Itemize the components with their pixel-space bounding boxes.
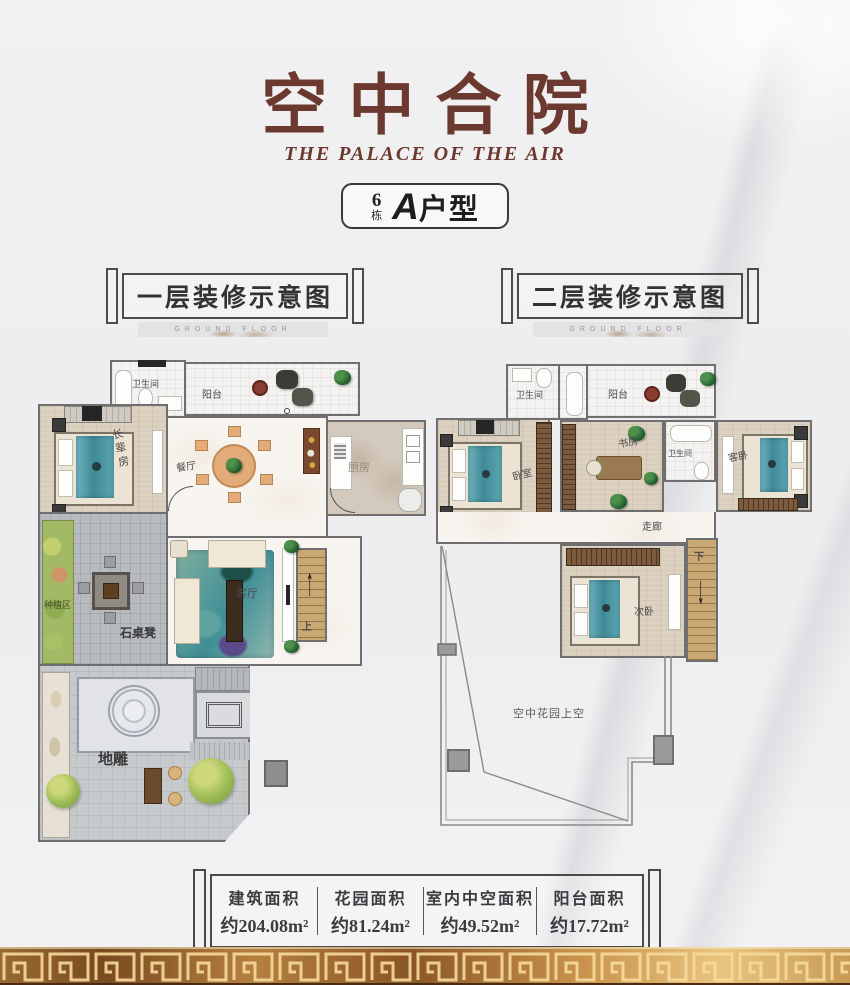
wardrobe-icon [536, 422, 552, 514]
toilet-icon [694, 462, 709, 480]
tv-icon [286, 585, 290, 605]
f1-living-room [166, 536, 362, 666]
unit-type-badge: 6 栋 A 户型 [340, 182, 510, 230]
f2-bathroom-label: 卫生间 [516, 388, 543, 401]
floor2-plan: ↓ 空中花园上空 卫生间 阳台 卧室 书房 卫生间 客卧 走廊 次卧 下 [436, 358, 816, 828]
planting-strip [42, 520, 74, 664]
plant-shelf-icon [303, 428, 320, 474]
f1-elder-bedroom [38, 404, 168, 514]
tv-wall-panel [282, 548, 294, 642]
floor2-label-text: 二层装修示意图 [532, 278, 728, 314]
pillow [791, 441, 804, 463]
sink-icon [406, 451, 420, 463]
plant-icon [644, 472, 658, 485]
area-stats: 建筑面积 约204.08m² 花园面积 约81.24m² 室内中空面积 约49.… [210, 874, 644, 948]
chair-icon [228, 492, 241, 503]
bean-seat-icon [666, 374, 686, 392]
entry-mat [206, 702, 242, 728]
floor2-banner-text: GROUND FLOOR [569, 326, 686, 333]
pillow [452, 449, 466, 473]
bed [448, 442, 522, 510]
counter-icon [402, 428, 424, 486]
stool-icon [168, 792, 182, 806]
rock-garden-strip [42, 672, 70, 838]
void-outline [436, 544, 686, 828]
f1-planting-label: 种植区 [44, 598, 71, 611]
stairs-down-arrow-icon: ↓ [697, 572, 705, 611]
f2-second-bedroom-label: 次卧 [634, 603, 654, 618]
building-number-unit: 栋 [371, 211, 382, 222]
f2-corridor-label: 走廊 [642, 518, 662, 533]
pillow [452, 477, 466, 501]
porch-steps [195, 667, 253, 691]
pillow [791, 468, 804, 490]
stat-building-area: 建筑面积 约204.08m² [212, 885, 317, 938]
stat-garden-area: 花园面积 约81.24m² [318, 885, 423, 938]
pillow [58, 470, 73, 497]
stat-value: 约204.08m² [221, 912, 309, 938]
unit-type: A 户型 [392, 188, 479, 225]
stat-label: 阳台面积 [554, 885, 626, 909]
f1-courtyard [38, 512, 168, 666]
tea-table-icon [144, 768, 162, 804]
stool-icon [104, 612, 116, 624]
floor1-banner-text: GROUND FLOOR [174, 326, 291, 333]
sofa-icon [208, 540, 266, 568]
f1-bathroom-label: 卫生间 [132, 377, 159, 390]
chair-icon [228, 426, 241, 437]
balcony-table-icon [252, 380, 268, 396]
stat-void-area: 室内中空面积 约49.52m² [424, 885, 536, 938]
plant-icon [700, 372, 716, 386]
ground-carving-circle-icon [108, 685, 160, 737]
chair-icon [196, 474, 209, 485]
f2-corridor [436, 512, 716, 544]
f1-living-label: 客厅 [236, 585, 258, 601]
plant-icon [284, 540, 299, 553]
floor1-plan: ↑ [36, 358, 428, 842]
tree-icon [46, 774, 80, 808]
side-table-icon [170, 540, 188, 558]
bean-seat-icon [292, 388, 313, 406]
nightstand-icon [440, 434, 453, 447]
entry-court [195, 691, 253, 739]
desk-chair-icon [586, 460, 602, 476]
f2-stairs-down-label: 下 [694, 548, 704, 563]
bed-ornament [482, 470, 490, 478]
vanity-icon [138, 360, 166, 367]
unit-type-text: 户型 [419, 196, 479, 225]
bathtub-icon [670, 425, 712, 442]
bed-ornament [768, 460, 776, 468]
step-strip [190, 742, 252, 760]
floorplan-poster: 空中合院 THE PALACE OF THE AIR 6 栋 A 户型 一层装修… [0, 0, 850, 985]
sink-icon [406, 435, 420, 447]
toilet-icon [536, 368, 552, 388]
stat-value: 约49.52m² [441, 912, 520, 938]
stat-value: 约17.72m² [550, 912, 629, 938]
bookshelf-icon [562, 424, 576, 510]
badge-content: 6 栋 A 户型 [340, 182, 510, 230]
floor1-section-label: 一层装修示意图 [122, 273, 348, 319]
f2-study [560, 420, 664, 512]
floor2-banner: GROUND FLOOR [533, 322, 723, 337]
building-number: 6 栋 [371, 191, 382, 222]
f1-balcony-label: 阳台 [202, 386, 222, 401]
f1-stone-table-label: 石桌凳 [120, 624, 156, 641]
stat-balcony-area: 阳台面积 约17.72m² [537, 885, 642, 938]
floor1-banner: GROUND FLOOR [138, 322, 328, 337]
chair-icon [258, 440, 271, 451]
unit-type-letter: A [392, 188, 419, 225]
desk-icon [596, 456, 642, 480]
floor2-section-label: 二层装修示意图 [517, 273, 743, 319]
f1-ground-carving-label: 地雕 [98, 748, 128, 769]
bed [742, 434, 808, 500]
carving-terrace [77, 677, 195, 753]
stove-icon [334, 443, 346, 459]
wardrobe-white-icon [722, 436, 734, 494]
page-subtitle: THE PALACE OF THE AIR [0, 143, 850, 166]
dresser-icon [152, 430, 163, 494]
f2-bedroom [436, 418, 550, 514]
balcony-table-icon [644, 386, 660, 402]
drain-icon [284, 408, 290, 414]
meander-border-icon [0, 947, 850, 985]
f1-dining-label: 餐厅 [175, 457, 197, 475]
f1-kitchen [326, 420, 426, 516]
f2-balcony [586, 364, 716, 418]
stone-table-icon [92, 572, 130, 610]
stat-value: 约81.24m² [331, 912, 410, 938]
chair-icon [195, 440, 208, 451]
stat-label: 室内中空面积 [426, 885, 534, 909]
stool-icon [78, 582, 90, 594]
nightstand-icon [52, 418, 66, 432]
stat-label: 花园面积 [334, 885, 406, 909]
tv-cabinet-icon [476, 420, 494, 434]
f1-garden-court [38, 664, 250, 842]
plant-icon [334, 370, 351, 385]
stat-label: 建筑面积 [228, 885, 300, 909]
f1-kitchen-label: 厨房 [348, 459, 370, 475]
tv-cabinet-icon [82, 406, 102, 421]
building-number-value: 6 [372, 191, 382, 210]
pillow [58, 439, 73, 466]
f2-shower-room [558, 364, 588, 420]
plant-icon [610, 494, 627, 509]
nightstand-icon [794, 426, 808, 440]
water-heater-icon [398, 488, 422, 512]
f1-stairs-up-label: 上 [302, 618, 312, 633]
stool-icon [104, 556, 116, 568]
stone-table-top [103, 583, 119, 599]
bed-ornament [92, 462, 101, 471]
side-sofa-icon [174, 578, 200, 644]
stairs-up-arrow-icon: ↑ [306, 564, 314, 603]
f2-void-label: 空中花园上空 [494, 705, 604, 721]
bathtub-icon [566, 372, 583, 416]
bench-icon [738, 498, 798, 511]
floor1-label-text: 一层装修示意图 [137, 278, 333, 314]
f2-bathroom2-label: 卫生间 [668, 448, 692, 459]
f2-guest-bedroom [716, 420, 812, 512]
kitchen-door-arc [330, 488, 355, 513]
stool-icon [168, 766, 182, 780]
page-title: 空中合院 [0, 52, 850, 148]
stool-icon [132, 582, 144, 594]
f2-balcony-label: 阳台 [608, 386, 628, 401]
table-plant-icon [226, 458, 242, 473]
porch-column [264, 760, 288, 787]
bean-seat-icon [276, 370, 298, 389]
plant-icon [284, 640, 299, 653]
tree-icon [188, 758, 234, 804]
bean-seat-icon [680, 390, 700, 407]
chair-icon [260, 474, 273, 485]
sink-icon [512, 368, 532, 382]
